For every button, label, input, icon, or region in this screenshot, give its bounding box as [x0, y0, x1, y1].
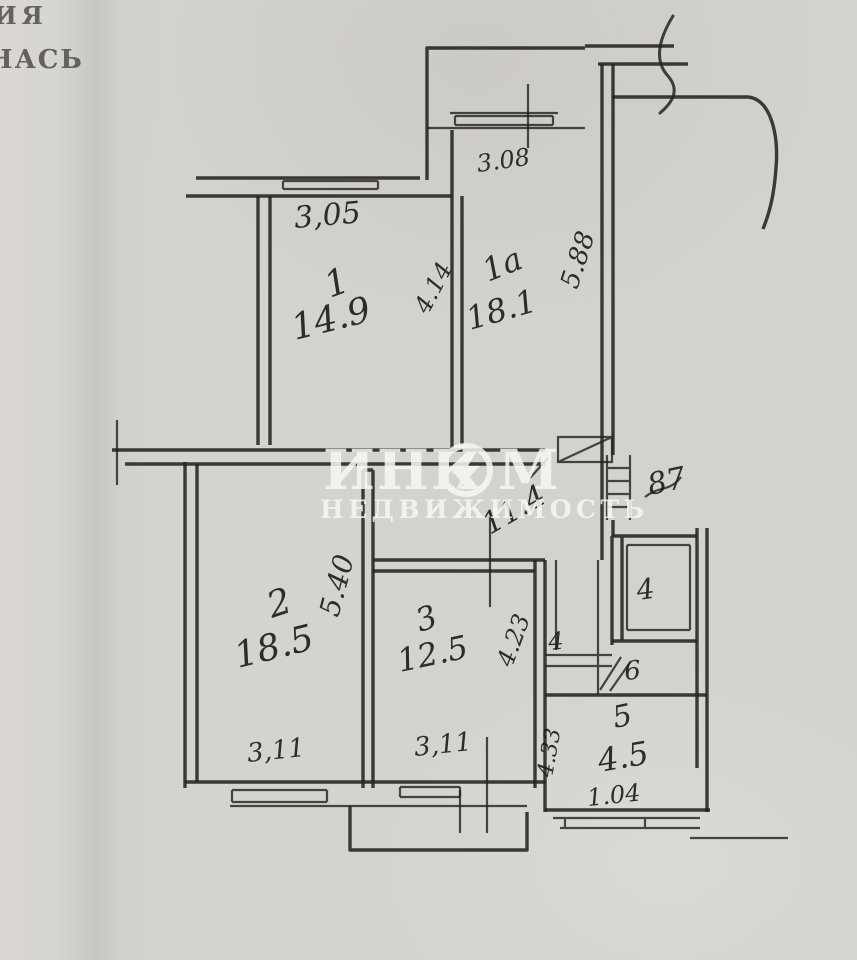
room3-diagonal-label: 4.23: [491, 610, 536, 671]
room2-area: 18.5: [230, 618, 318, 677]
room1-width-label: 3,05: [293, 195, 363, 236]
room5-walls: [545, 810, 788, 838]
room1a-diagonal-label: 5.88: [555, 228, 601, 292]
room5-height-label: 4.33: [533, 726, 566, 780]
wc-number: 6: [623, 656, 642, 687]
room3-area: 12.5: [394, 628, 472, 680]
top-balcony-walls: [427, 46, 674, 180]
room1a-area: 18.1: [462, 282, 541, 338]
top-right-cut-marks: [598, 16, 777, 229]
watermark-subtitle: НЕДВИЖИМОСТЬ: [320, 495, 649, 524]
bathroom-number: 4: [633, 572, 656, 607]
room5-area: 4.5: [594, 734, 652, 780]
room1-area: 14.9: [287, 290, 375, 349]
corner-stamp-text: ИЯ НАСЬ: [0, 1, 84, 75]
room5-width-label: 1.04: [586, 779, 642, 812]
stamp-line1: ИЯ: [0, 1, 48, 30]
bottom-walls-and-balcony: [185, 737, 545, 850]
room1a-number: 1а: [477, 239, 528, 289]
watermark-text-right: М: [498, 437, 559, 502]
balcony-width-label: 3.08: [475, 143, 532, 178]
wall-scribble-label: 87: [644, 460, 690, 502]
scanned-floorplan-page: 3.08 3,05 4.14 5.88 5.40 4.23 3,11 3,11 …: [0, 0, 857, 960]
room2-bottom-width-label: 3,11: [246, 733, 307, 769]
room5-number: 5: [609, 698, 635, 736]
stamp-line2: НАСЬ: [0, 45, 84, 75]
room3-bottom-width-label: 3,11: [413, 727, 474, 763]
room2-number: 2: [261, 580, 296, 626]
room2-diagonal-label: 5.40: [313, 551, 361, 620]
floorplan-drawing: 3.08 3,05 4.14 5.88 5.40 4.23 3,11 3,11 …: [0, 0, 857, 960]
closet-number: 4: [546, 627, 565, 656]
